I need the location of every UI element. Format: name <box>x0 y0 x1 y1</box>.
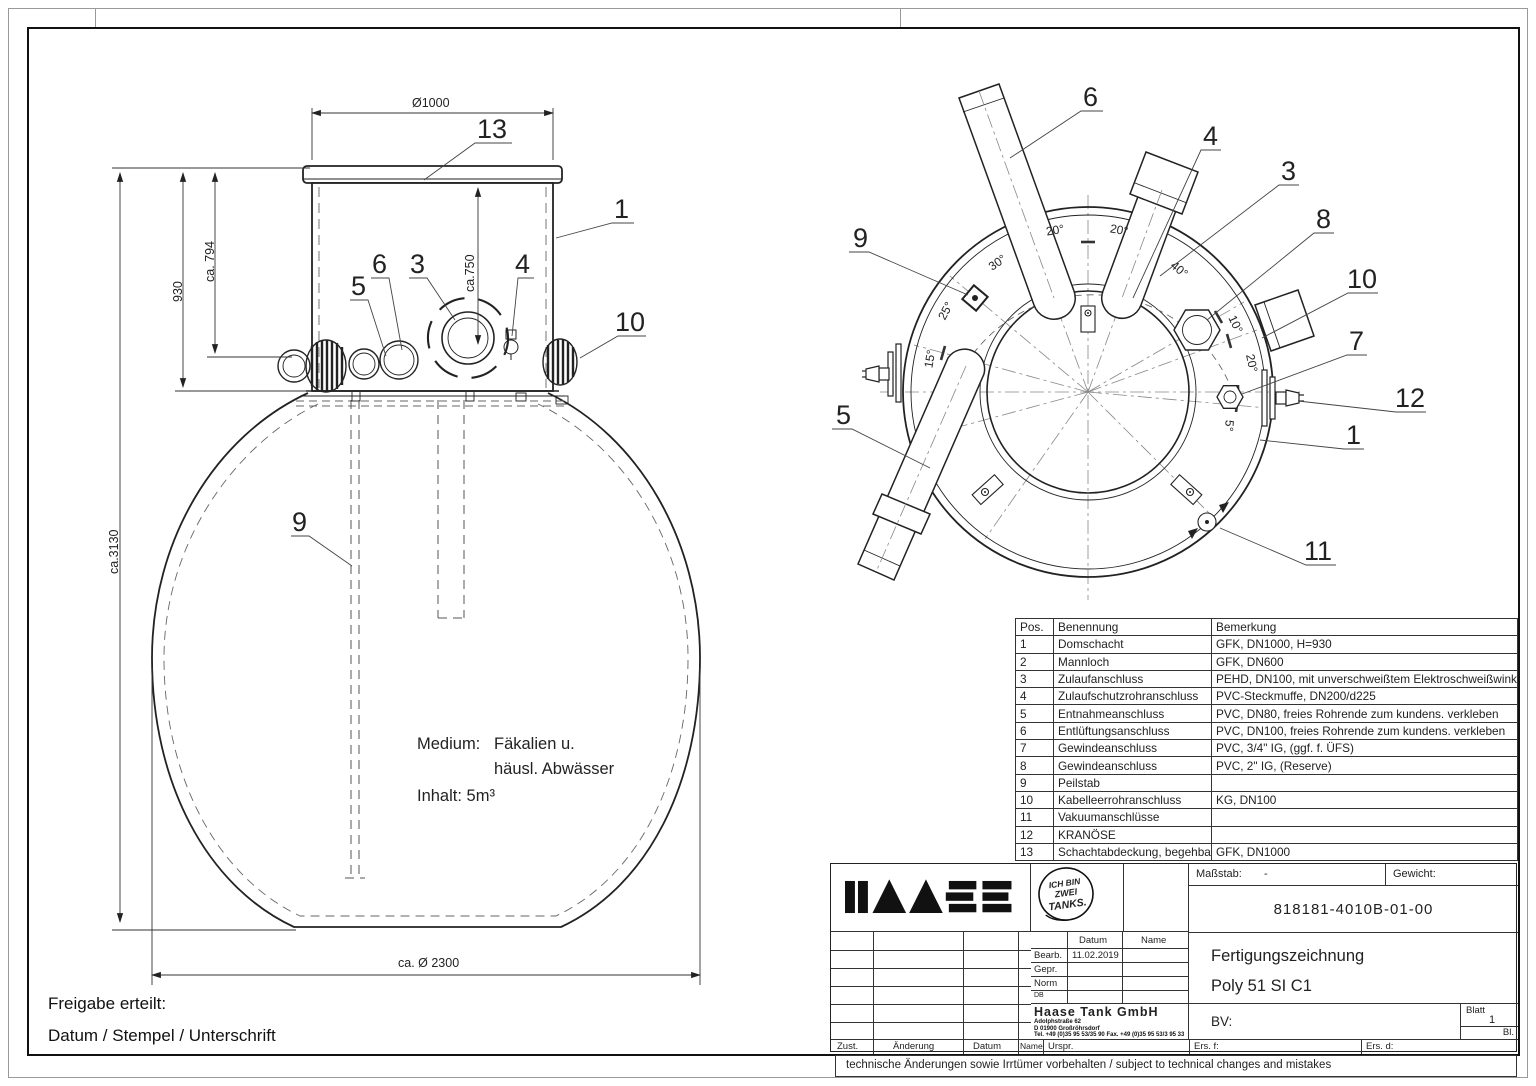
angle-25: 25° <box>935 299 956 322</box>
gewicht-label: Gewicht: <box>1393 868 1436 880</box>
angle-10: 10° <box>1225 313 1245 336</box>
datum-label: Datum <box>973 1041 1001 1052</box>
callout-6: 6 <box>372 249 387 279</box>
company-address-3: Tel. +49 (0)35 95 53/35 90 Fax. +49 (0)3… <box>1034 1032 1188 1039</box>
callout-top-10: 10 <box>1347 264 1377 294</box>
dim-height-750: ca.750 <box>463 254 477 292</box>
bearb-label: Bearb. <box>1034 950 1062 961</box>
cell-name: KRANÖSE <box>1054 826 1212 843</box>
table-row: 8GewindeanschlussPVC, 2" IG, (Reserve) <box>1016 757 1518 774</box>
angle-20-right: 20° <box>1109 221 1130 238</box>
cell-name: Gewindeanschluss <box>1054 740 1212 757</box>
bv-label: BV: <box>1211 1014 1232 1029</box>
doc-title-cell: Fertigungszeichnung Poly 51 SI C1 <box>1189 933 1518 1003</box>
medium-label: Medium: <box>417 735 480 753</box>
gewicht-cell: Gewicht: <box>1386 864 1518 886</box>
angle-15: 15° <box>921 349 938 370</box>
ers-d-label: Ers. d: <box>1366 1041 1393 1052</box>
callout-13: 13 <box>477 114 507 144</box>
callout-top-11: 11 <box>1304 536 1332 566</box>
callout-top-5: 5 <box>836 400 851 430</box>
revision-grid <box>831 931 1031 1039</box>
stamp-cell: ICH BIN ZWEI TANKS. <box>1031 864 1124 931</box>
callout-3: 3 <box>410 249 425 279</box>
db-label: DB <box>1034 992 1044 999</box>
disclaimer-text: technische Änderungen sowie Irrtümer vor… <box>846 1059 1331 1071</box>
table-row: 3ZulaufanschlussPEHD, DN100, mit unversc… <box>1016 670 1518 687</box>
table-row: 7GewindeanschlussPVC, 3/4" IG, (ggf. f. … <box>1016 740 1518 757</box>
front-view: Ø1000 ca.3130 930 ca. 794 ca.750 ca. Ø 2… <box>107 96 700 985</box>
cell-note <box>1212 774 1518 791</box>
two-tanks-stamp: ICH BIN ZWEI TANKS. <box>1031 864 1101 928</box>
clamp-tabs <box>972 306 1202 504</box>
parts-table: Pos. Benennung Bemerkung 1DomschachtGFK,… <box>1015 618 1518 861</box>
callout-top-4: 4 <box>1203 121 1218 151</box>
cell-note: PVC, 3/4" IG, (ggf. f. ÜFS) <box>1212 740 1518 757</box>
threaded-boss-7 <box>1217 386 1243 409</box>
angle-20-low: 20° <box>1243 353 1261 374</box>
masstab-cell: Maßstab: - <box>1189 864 1386 886</box>
bl-label: Bl. <box>1503 1027 1514 1038</box>
urspr-label: Urspr. <box>1048 1041 1073 1052</box>
vent-pipe-6 <box>959 84 1075 319</box>
doc-title: Poly 51 SI C1 <box>1211 977 1518 996</box>
cell-name: Kabelleerrohranschluss <box>1054 791 1212 808</box>
bv-cell: BV: <box>1189 1003 1461 1039</box>
table-row: 10KabelleerrohranschlussKG, DN100 <box>1016 791 1518 808</box>
callout-9: 9 <box>292 507 307 537</box>
cell-pos: 8 <box>1016 757 1054 774</box>
cell-note: PVC-Steckmuffe, DN200/d225 <box>1212 688 1518 705</box>
col-header-benennung: Benennung <box>1054 619 1212 636</box>
shaft-lid <box>303 166 562 183</box>
table-row: 13Schachtabdeckung, begehbarGFK, DN1000 <box>1016 843 1518 860</box>
cell-pos: 7 <box>1016 740 1054 757</box>
bearb-date: 11.02.2019 <box>1072 950 1119 961</box>
dim-bottom-diameter: ca. Ø 2300 <box>398 956 459 970</box>
dim-top-diameter: Ø1000 <box>412 96 450 110</box>
col-header-pos: Pos. <box>1016 619 1054 636</box>
angle-30: 30° <box>986 251 1009 273</box>
name-column-label: Name <box>1141 935 1166 946</box>
cell-pos: 1 <box>1016 636 1054 653</box>
cell-name: Zulaufschutzrohranschluss <box>1054 688 1212 705</box>
cell-name: Entnahmeanschluss <box>1054 705 1212 722</box>
crane-lug-left <box>862 344 901 402</box>
cell-pos: 10 <box>1016 791 1054 808</box>
dim-height-794: ca. 794 <box>203 241 217 282</box>
tank-outline <box>152 393 700 927</box>
cell-note: GFK, DN1000 <box>1212 843 1518 860</box>
drawing-number-cell: 818181-4010B-01-00 <box>1189 886 1518 933</box>
cell-name: Peilstab <box>1054 774 1212 791</box>
callout-top-12: 12 <box>1395 383 1425 413</box>
medium-value-1: Fäkalien u. <box>494 735 575 753</box>
zust-label: Zust. <box>837 1041 858 1052</box>
gepr-label: Gepr. <box>1034 964 1057 975</box>
callout-10: 10 <box>615 307 645 337</box>
table-row: 9Peilstab <box>1016 774 1518 791</box>
threaded-boss-8 <box>1174 310 1220 350</box>
datum-column-label: Datum <box>1079 935 1107 946</box>
name-label: Name <box>1020 1041 1043 1051</box>
dim-height-total: ca.3130 <box>107 529 121 574</box>
cell-pos: 9 <box>1016 774 1054 791</box>
table-row: 2MannlochGFK, DN600 <box>1016 653 1518 670</box>
ribbed-connector-right <box>543 339 577 385</box>
drawing-number: 818181-4010B-01-00 <box>1189 901 1518 918</box>
cell-note: PVC, 2" IG, (Reserve) <box>1212 757 1518 774</box>
blatt-value: 1 <box>1489 1014 1495 1026</box>
cell-name: Domschacht <box>1054 636 1212 653</box>
logo-cell <box>831 864 1031 931</box>
callout-1: 1 <box>614 194 629 224</box>
signature-block: Datum Name Bearb. 11.02.2019 Gepr. Norm … <box>1031 931 1189 1003</box>
table-row: 12KRANÖSE <box>1016 826 1518 843</box>
callout-top-8: 8 <box>1316 204 1331 234</box>
cell-name: Entlüftungsanschluss <box>1054 722 1212 739</box>
angle-20-left: 20° <box>1045 222 1066 239</box>
callout-top-3: 3 <box>1281 156 1296 186</box>
cell-note <box>1212 809 1518 826</box>
table-row: 1DomschachtGFK, DN1000, H=930 <box>1016 636 1518 653</box>
cell-note: GFK, DN1000, H=930 <box>1212 636 1518 653</box>
cell-pos: 4 <box>1016 688 1054 705</box>
cable-duct-stub-10 <box>1255 290 1314 351</box>
angle-5: 5° <box>1222 419 1237 432</box>
table-header-row: Pos. Benennung Bemerkung <box>1016 619 1518 636</box>
company-block: Haase Tank GmbH Adolphstraße 62 D 01900 … <box>1031 1003 1189 1039</box>
callout-5: 5 <box>351 271 366 301</box>
dim-height-shaft: 930 <box>171 281 185 302</box>
cell-pos: 5 <box>1016 705 1054 722</box>
drawing-sheet: Ø1000 ca.3130 930 ca. 794 ca.750 ca. Ø 2… <box>0 0 1536 1086</box>
approval-line-2: Datum / Stempel / Unterschrift <box>48 1026 276 1046</box>
cell-pos: 11 <box>1016 809 1054 826</box>
cell-note: GFK, DN600 <box>1212 653 1518 670</box>
cell-pos: 2 <box>1016 653 1054 670</box>
cell-pos: 12 <box>1016 826 1054 843</box>
cell-name: Schachtabdeckung, begehbar <box>1054 843 1212 860</box>
table-row: 11Vakuumanschlüsse <box>1016 809 1518 826</box>
blatt-label: Blatt <box>1466 1005 1485 1016</box>
masstab-label: Maßstab: <box>1196 868 1242 880</box>
table-row: 5EntnahmeanschlussPVC, DN80, freies Rohr… <box>1016 705 1518 722</box>
cell-note: PVC, DN100, freies Rohrende zum kundens.… <box>1212 722 1518 739</box>
cell-note: PEHD, DN100, mit unverschweißtem Elektro… <box>1212 670 1518 687</box>
peilstab-tube <box>345 400 365 878</box>
tank-inner-wall <box>164 404 688 916</box>
masstab-value: - <box>1264 868 1268 880</box>
haase-logo <box>845 874 1013 920</box>
table-row: 6EntlüftungsanschlussPVC, DN100, freies … <box>1016 722 1518 739</box>
blatt-cell: Blatt 1 <box>1461 1003 1518 1027</box>
title-block: ICH BIN ZWEI TANKS. Maßstab: - Gewicht: … <box>830 863 1517 1052</box>
cell-name: Gewindeanschluss <box>1054 757 1212 774</box>
cell-pos: 13 <box>1016 843 1054 860</box>
table-row: 4ZulaufschutzrohranschlussPVC-Steckmuffe… <box>1016 688 1518 705</box>
top-view: 20° 20° 30° 40° 25° 15° 10° 20° 5° <box>832 82 1426 600</box>
callout-top-6: 6 <box>1083 82 1098 112</box>
stamp-line-3: TANKS. <box>1048 896 1088 913</box>
norm-label: Norm <box>1034 978 1057 989</box>
callout-top-7: 7 <box>1349 326 1364 356</box>
doc-type: Fertigungszeichnung <box>1211 947 1518 966</box>
aenderung-label: Änderung <box>893 1041 934 1052</box>
inhalt-note: Inhalt: 5m³ <box>417 787 495 805</box>
cell-note <box>1212 826 1518 843</box>
callout-4: 4 <box>515 249 530 279</box>
extraction-pipe-5 <box>858 349 985 580</box>
cell-note: PVC, DN80, freies Rohrende zum kundens. … <box>1212 705 1518 722</box>
cell-pos: 3 <box>1016 670 1054 687</box>
medium-value-2: häusl. Abwässer <box>494 760 615 778</box>
cell-pos: 6 <box>1016 722 1054 739</box>
callout-top-1: 1 <box>1346 420 1361 450</box>
cell-note: KG, DN100 <box>1212 791 1518 808</box>
suction-tube <box>438 400 464 618</box>
bottom-label-row: Zust. Änderung Datum Name Urspr. Ers. f:… <box>831 1039 1518 1053</box>
company-name: Haase Tank GmbH <box>1034 1005 1188 1019</box>
disclaimer-strip: technische Änderungen sowie Irrtümer vor… <box>835 1055 1517 1077</box>
callout-top-9: 9 <box>853 223 868 253</box>
bl-cell: Bl. <box>1461 1027 1518 1039</box>
approval-line-1: Freigabe erteilt: <box>48 994 166 1014</box>
col-header-bemerkung: Bemerkung <box>1212 619 1518 636</box>
cell-name: Zulaufanschluss <box>1054 670 1212 687</box>
cell-name: Vakuumanschlüsse <box>1054 809 1212 826</box>
cell-name: Mannloch <box>1054 653 1212 670</box>
ers-f-label: Ers. f: <box>1194 1041 1219 1052</box>
